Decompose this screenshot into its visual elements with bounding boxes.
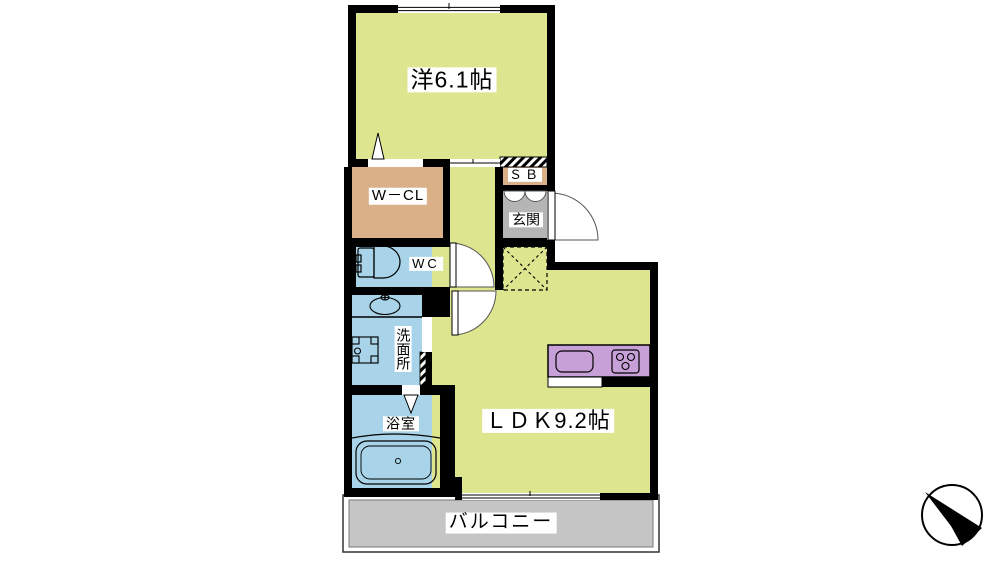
floor-plan-page: 洋6.1帖 W－CL ＳＢ 玄関 WC 洗面所 浴室 ＬＤＫ9.2帖 バルコニー <box>0 0 1000 562</box>
washroom <box>352 295 422 385</box>
floor-plan-canvas <box>0 0 1000 562</box>
exterior-notch <box>555 240 658 262</box>
north-arrow-icon <box>922 485 982 546</box>
upper-cabinet-hatch <box>500 157 547 167</box>
washroom-label: 洗面所 <box>395 326 412 372</box>
bathroom-label: 浴室 <box>383 416 419 431</box>
washroom-door-opening <box>422 318 432 352</box>
window-top <box>398 3 500 13</box>
toilet-label: WC <box>409 257 443 271</box>
entrance-label: 玄関 <box>509 212 543 227</box>
western-room-label: 洋6.1帖 <box>408 67 497 92</box>
washroom-hatch-strip <box>420 352 426 385</box>
walk-in-closet-label: W－CL <box>369 188 427 205</box>
balcony-label: バルコニー <box>446 513 557 534</box>
sliding-door-western-room <box>450 159 500 167</box>
entrance-door <box>548 191 598 240</box>
shoe-box-label: ＳＢ <box>508 168 542 182</box>
ldk-label: ＬＤＫ9.2帖 <box>482 409 614 433</box>
